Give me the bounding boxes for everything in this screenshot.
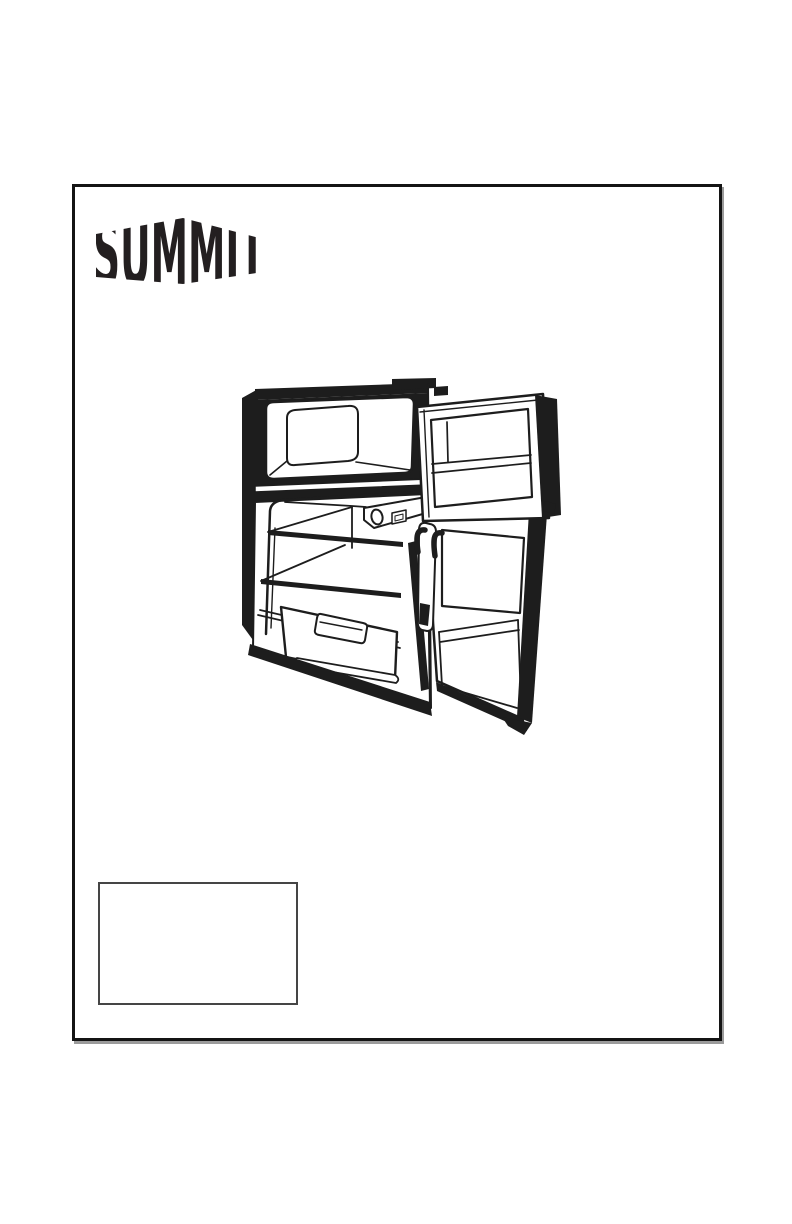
summit-logo: SUMMIT [96,218,263,284]
refrigerator-illustration [240,378,562,736]
model-info-box [98,882,298,1005]
refrigerator-compartment [248,492,433,716]
freezer-compartment [255,393,428,502]
top-hinge-block [392,378,436,390]
refrigerator-line-art [240,378,562,736]
summit-logo-text: SUMMIT [96,218,263,284]
refrigerator-door [418,505,547,735]
summit-logo-graphic: SUMMIT [96,218,263,284]
door-liner-panel [442,530,524,613]
top-hinge-step [434,386,448,396]
manual-cover-page: SUMMIT [0,0,792,1224]
freezer-door [417,394,561,521]
freezer-back-wall [287,406,358,465]
freezer-door-liner [431,409,532,507]
